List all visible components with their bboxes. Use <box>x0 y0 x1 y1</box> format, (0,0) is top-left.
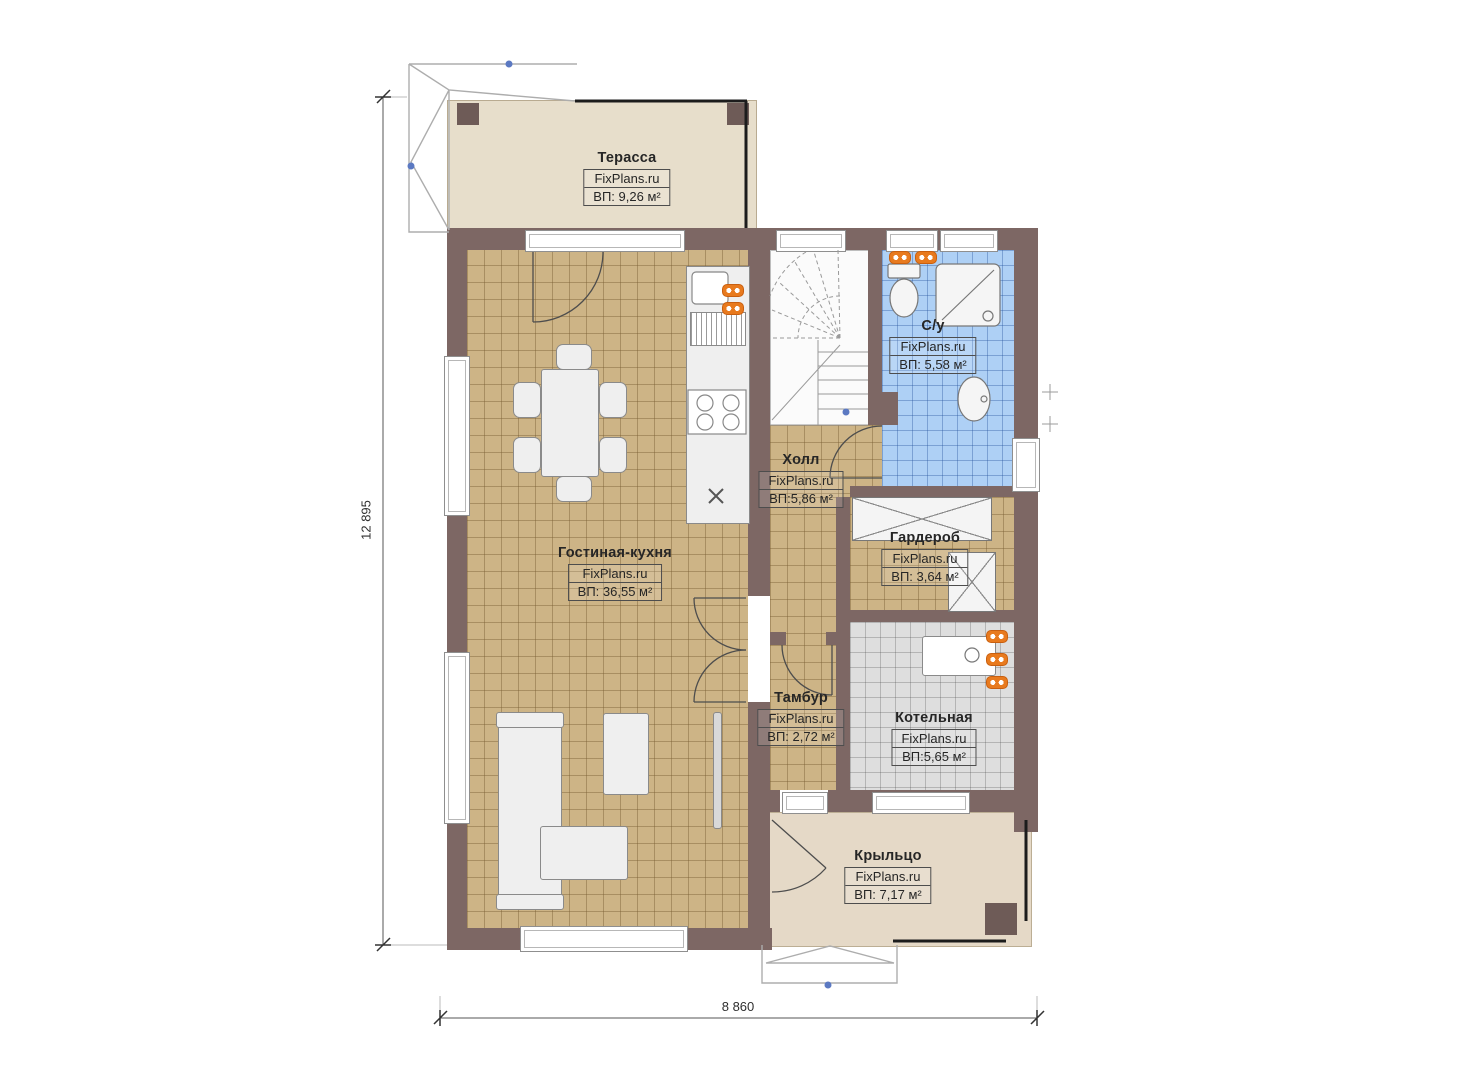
room-brand: FixPlans.ru <box>892 730 975 748</box>
room-title: Котельная <box>891 710 976 726</box>
room-info-box: FixPlans.ru ВП: 36,55 м² <box>568 564 663 601</box>
room-info-box: FixPlans.ru ВП:5,86 м² <box>758 471 843 508</box>
room-brand: FixPlans.ru <box>882 550 967 568</box>
room-title: Крыльцо <box>844 848 931 864</box>
room-title: С/у <box>889 318 976 334</box>
room-area: ВП:5,65 м² <box>892 748 975 765</box>
sofa-armrest-top <box>496 712 564 728</box>
room-label-vestibule: Тамбур FixPlans.ru ВП: 2,72 м² <box>757 690 844 746</box>
wall-bathroom-bottom <box>850 486 1014 497</box>
boiler-unit <box>922 636 996 676</box>
radiator-kitchen-1 <box>722 284 744 297</box>
room-label-terrace: Терасса FixPlans.ru ВП: 9,26 м² <box>583 150 670 206</box>
radiator-boiler-1 <box>986 630 1008 643</box>
staircase-area <box>770 250 870 427</box>
dimension-bottom-label: 8 860 <box>722 999 755 1014</box>
terrace-door-opening <box>525 230 685 252</box>
porch-roof-outline <box>762 945 897 983</box>
chair-left-2 <box>513 437 541 473</box>
room-label-bathroom: С/у FixPlans.ru ВП: 5,58 м² <box>889 318 976 374</box>
room-info-box: FixPlans.ru ВП:5,65 м² <box>891 729 976 766</box>
radiator-bathroom-2 <box>915 251 937 264</box>
dishwasher <box>690 312 746 346</box>
window-left-upper <box>444 356 470 516</box>
wall-vestibule-bottom-a <box>770 790 780 812</box>
tv-unit <box>713 712 722 829</box>
room-brand: FixPlans.ru <box>845 868 930 886</box>
chair-top <box>556 344 592 370</box>
room-label-porch: Крыльцо FixPlans.ru ВП: 7,17 м² <box>844 848 931 904</box>
room-title: Терасса <box>583 150 670 166</box>
room-info-box: FixPlans.ru ВП: 7,17 м² <box>844 867 931 904</box>
floor-plan: Терасса FixPlans.ru ВП: 9,26 м² С/у FixP… <box>0 0 1474 1080</box>
room-label-hall: Холл FixPlans.ru ВП:5,86 м² <box>758 452 843 508</box>
room-label-living-kitchen: Гостиная-кухня FixPlans.ru ВП: 36,55 м² <box>558 545 672 601</box>
room-area: ВП:5,86 м² <box>759 490 842 507</box>
sofa-chaise <box>540 826 628 880</box>
room-title: Гостиная-кухня <box>558 545 672 561</box>
room-info-box: FixPlans.ru ВП: 2,72 м² <box>757 709 844 746</box>
room-brand: FixPlans.ru <box>584 170 669 188</box>
wall-hall-wardrobe <box>836 497 850 645</box>
room-brand: FixPlans.ru <box>890 338 975 356</box>
window-top-bathroom-b <box>940 230 998 252</box>
room-area: ВП: 7,17 м² <box>845 886 930 903</box>
dimension-left-label: 12 895 <box>359 500 374 540</box>
room-info-box: FixPlans.ru ВП: 3,64 м² <box>881 549 968 586</box>
wall-vestibule-bottom-b <box>828 790 836 812</box>
wall-hall-vestibule-a <box>770 632 786 645</box>
room-area: ВП: 5,58 м² <box>890 356 975 373</box>
room-area: ВП: 9,26 м² <box>584 188 669 205</box>
room-label-wardrobe: Гардероб FixPlans.ru ВП: 3,64 м² <box>881 530 968 586</box>
radiator-bathroom-1 <box>889 251 911 264</box>
window-top-bathroom-a <box>886 230 938 252</box>
wall-bathroom-stub <box>870 392 898 425</box>
coffee-table <box>603 713 649 795</box>
room-title: Гардероб <box>881 530 968 546</box>
radiator-kitchen-2 <box>722 302 744 315</box>
radiator-boiler-3 <box>986 676 1008 689</box>
chair-right-2 <box>599 437 627 473</box>
room-area: ВП: 2,72 м² <box>758 728 843 745</box>
chair-left-1 <box>513 382 541 418</box>
terrace-column-left <box>457 103 479 125</box>
room-brand: FixPlans.ru <box>569 565 662 583</box>
sofa-armrest-bottom <box>496 894 564 910</box>
window-boiler-bottom <box>872 792 970 814</box>
wall-left <box>447 228 467 950</box>
porch-column <box>985 903 1017 935</box>
room-brand: FixPlans.ru <box>758 710 843 728</box>
entrance-threshold <box>782 792 828 814</box>
room-label-boiler: Котельная FixPlans.ru ВП:5,65 м² <box>891 710 976 766</box>
room-title: Холл <box>758 452 843 468</box>
room-area: ВП: 3,64 м² <box>882 568 967 585</box>
chair-right-1 <box>599 382 627 418</box>
room-title: Тамбур <box>757 690 844 706</box>
window-left-lower <box>444 652 470 824</box>
wall-partition-upper <box>748 248 770 596</box>
room-brand: FixPlans.ru <box>759 472 842 490</box>
dining-table <box>541 369 599 477</box>
room-area: ВП: 36,55 м² <box>569 583 662 600</box>
window-bottom-living <box>520 926 688 952</box>
terrace-column-right <box>727 103 749 125</box>
wall-right <box>1014 228 1038 832</box>
hall-floor-lower <box>770 497 836 645</box>
window-top-stairs <box>776 230 846 252</box>
chair-bottom <box>556 476 592 502</box>
window-right-hall <box>1012 438 1040 492</box>
wall-hall-vestibule-b <box>826 632 836 645</box>
room-info-box: FixPlans.ru ВП: 9,26 м² <box>583 169 670 206</box>
section-cross-marks <box>1042 384 1058 432</box>
radiator-boiler-2 <box>986 653 1008 666</box>
room-info-box: FixPlans.ru ВП: 5,58 м² <box>889 337 976 374</box>
